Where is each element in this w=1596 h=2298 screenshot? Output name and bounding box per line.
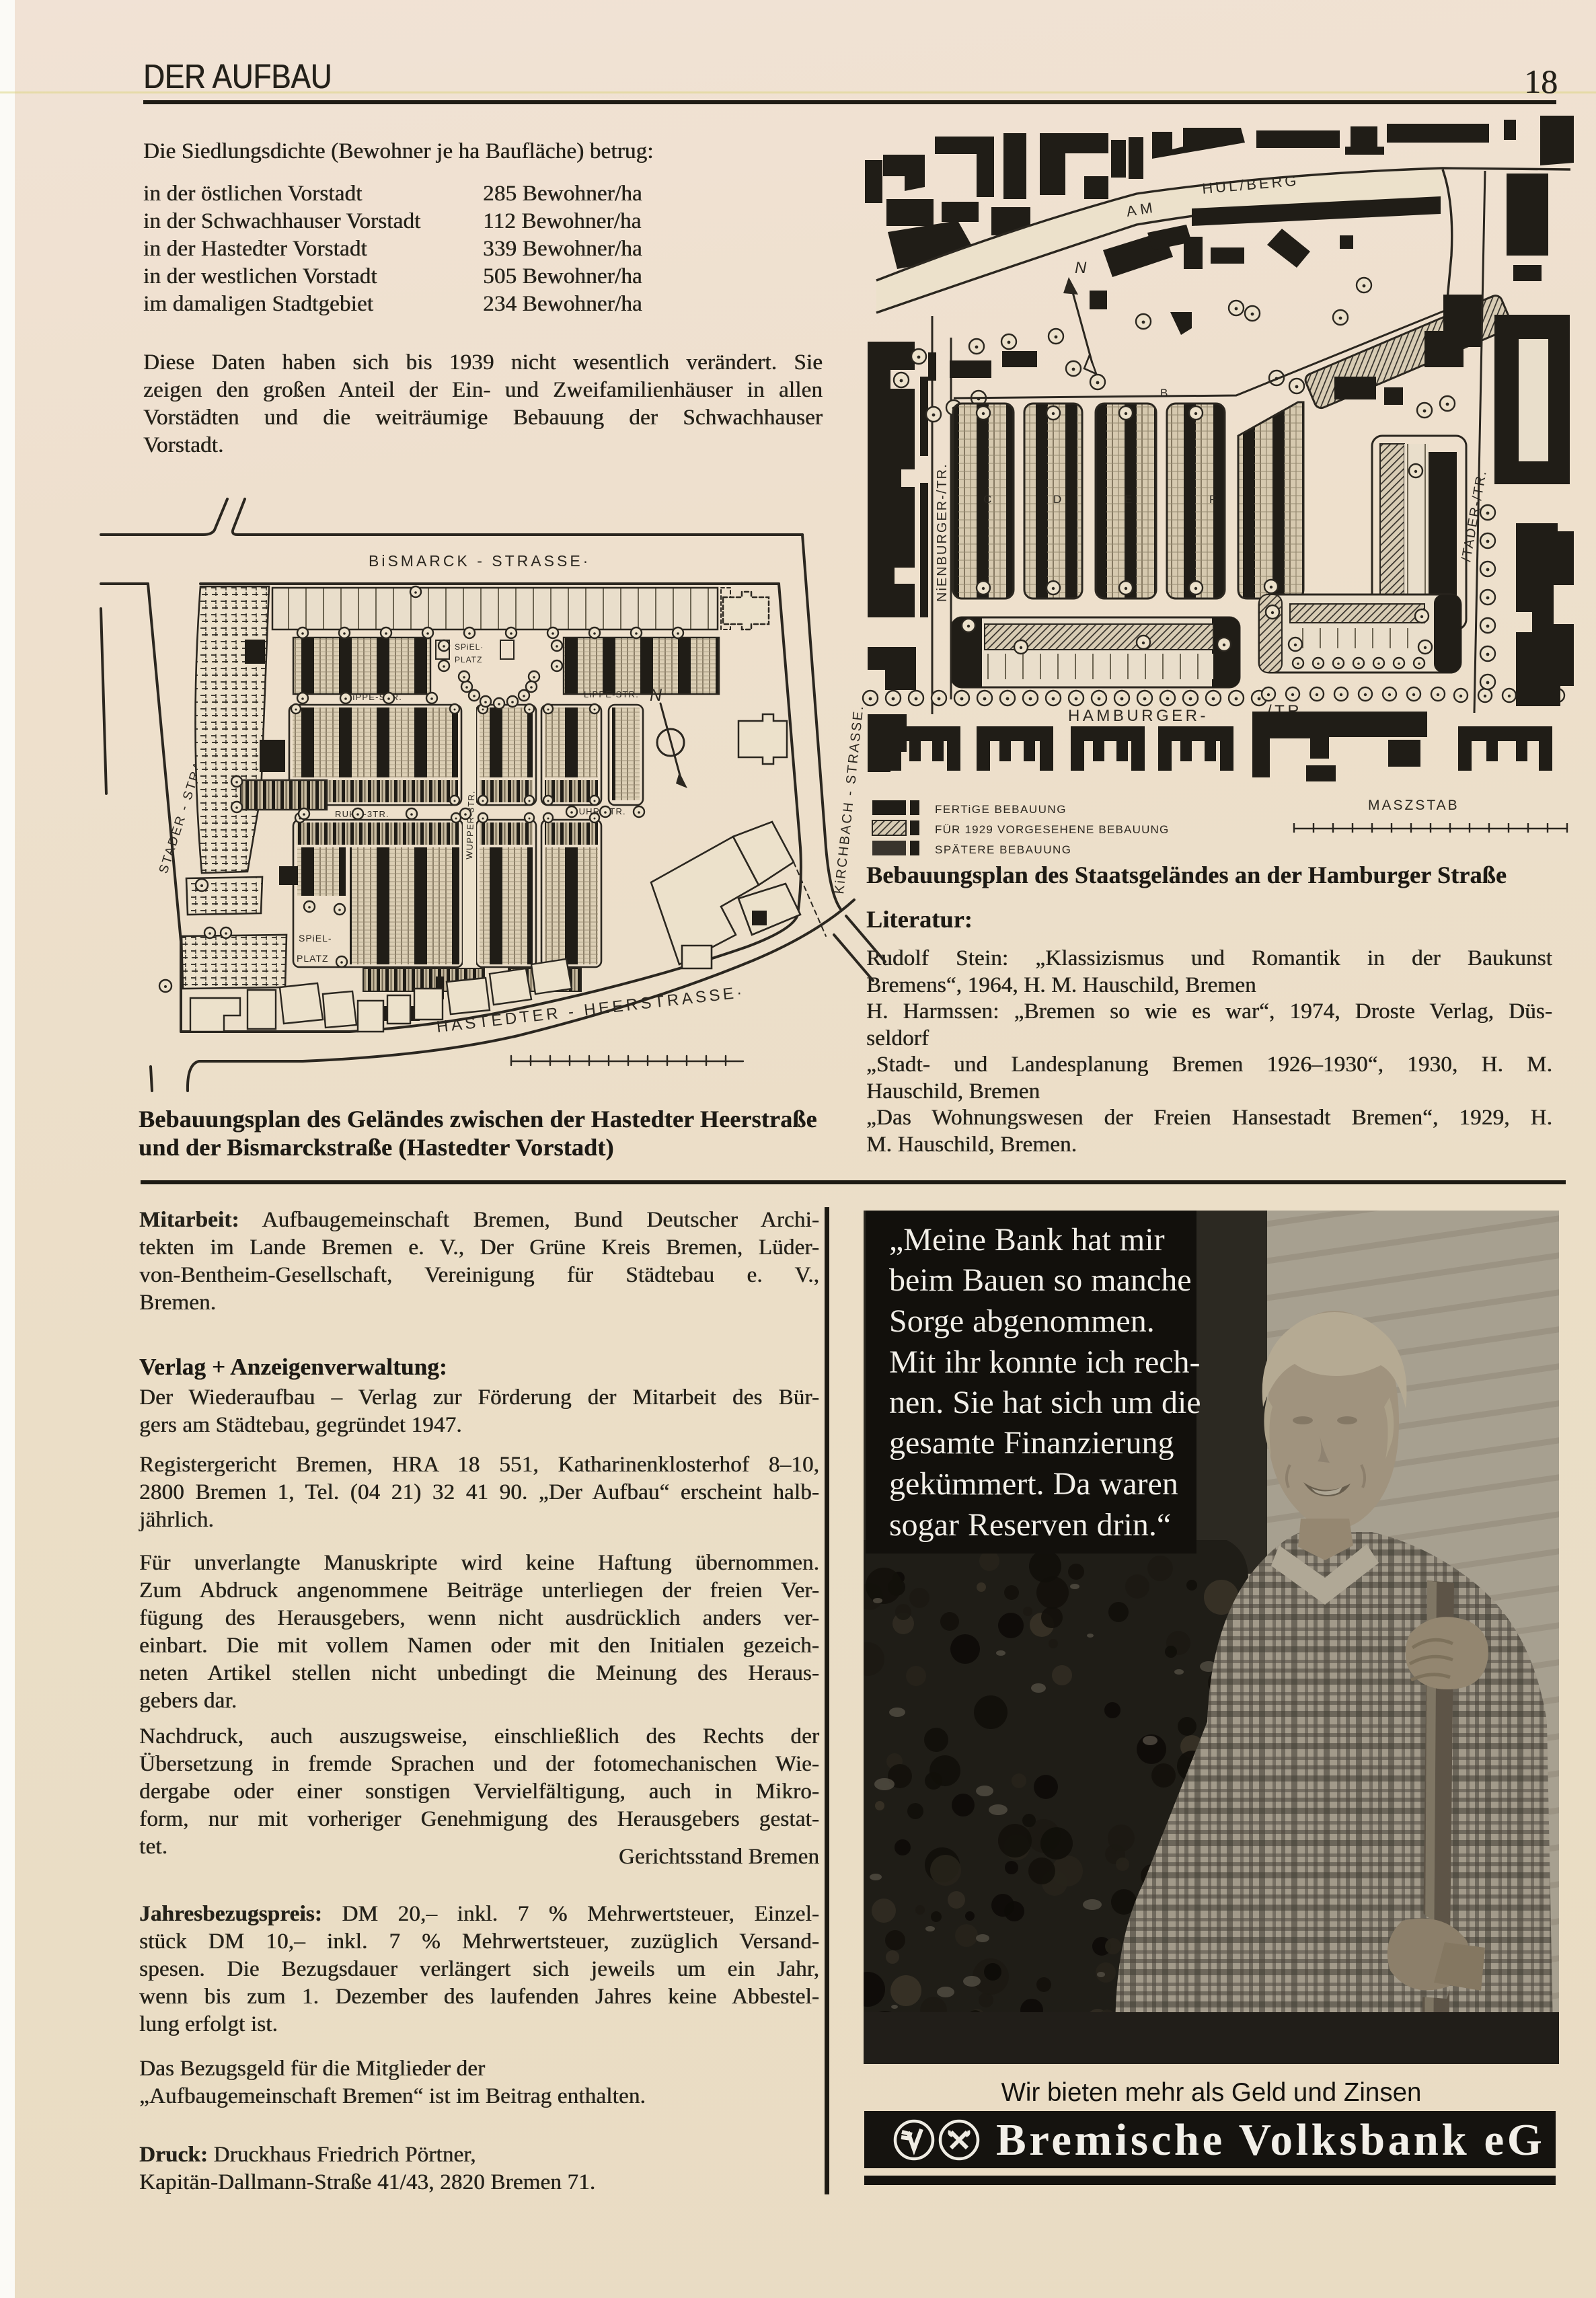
svg-text:F: F [1209,493,1216,506]
svg-text:RUHR-3TR.: RUHR-3TR. [572,806,626,816]
svg-text:B: B [1160,387,1168,399]
svg-text:MASZSTAB: MASZSTAB [1368,798,1459,813]
svg-text:NiENBURGER-/TR.: NiENBURGER-/TR. [935,463,950,602]
svg-text:FÜR 1929 VORGESEHENE BEBAUUNG: FÜR 1929 VORGESEHENE BEBAUUNG [935,823,1169,836]
svg-text:D: D [1053,493,1061,506]
svg-text:PLATZ: PLATZ [297,953,329,964]
svg-text:HAMBURGER-: HAMBURGER- [1068,707,1209,725]
svg-text:E: E [1125,493,1132,506]
svg-text:KiRCHBACH - STRASSE.: KiRCHBACH - STRASSE. [832,703,867,894]
svg-text:C: C [983,493,991,506]
svg-text:LiPPE-STR.: LiPPE-STR. [584,689,639,699]
svg-text:N: N [650,686,662,705]
svg-text:PLATZ: PLATZ [455,655,482,664]
svg-text:BiSMARCK - STRASSE·: BiSMARCK - STRASSE· [369,552,591,570]
svg-text:SPiEL-: SPiEL- [299,933,332,944]
svg-text:SPÄTERE BEBAUUNG: SPÄTERE BEBAUUNG [935,843,1072,856]
svg-text:SPiEL·: SPiEL· [455,642,484,652]
svg-text:N: N [1075,259,1087,277]
svg-text:FERTiGE BEBAUUNG: FERTiGE BEBAUUNG [935,803,1067,816]
